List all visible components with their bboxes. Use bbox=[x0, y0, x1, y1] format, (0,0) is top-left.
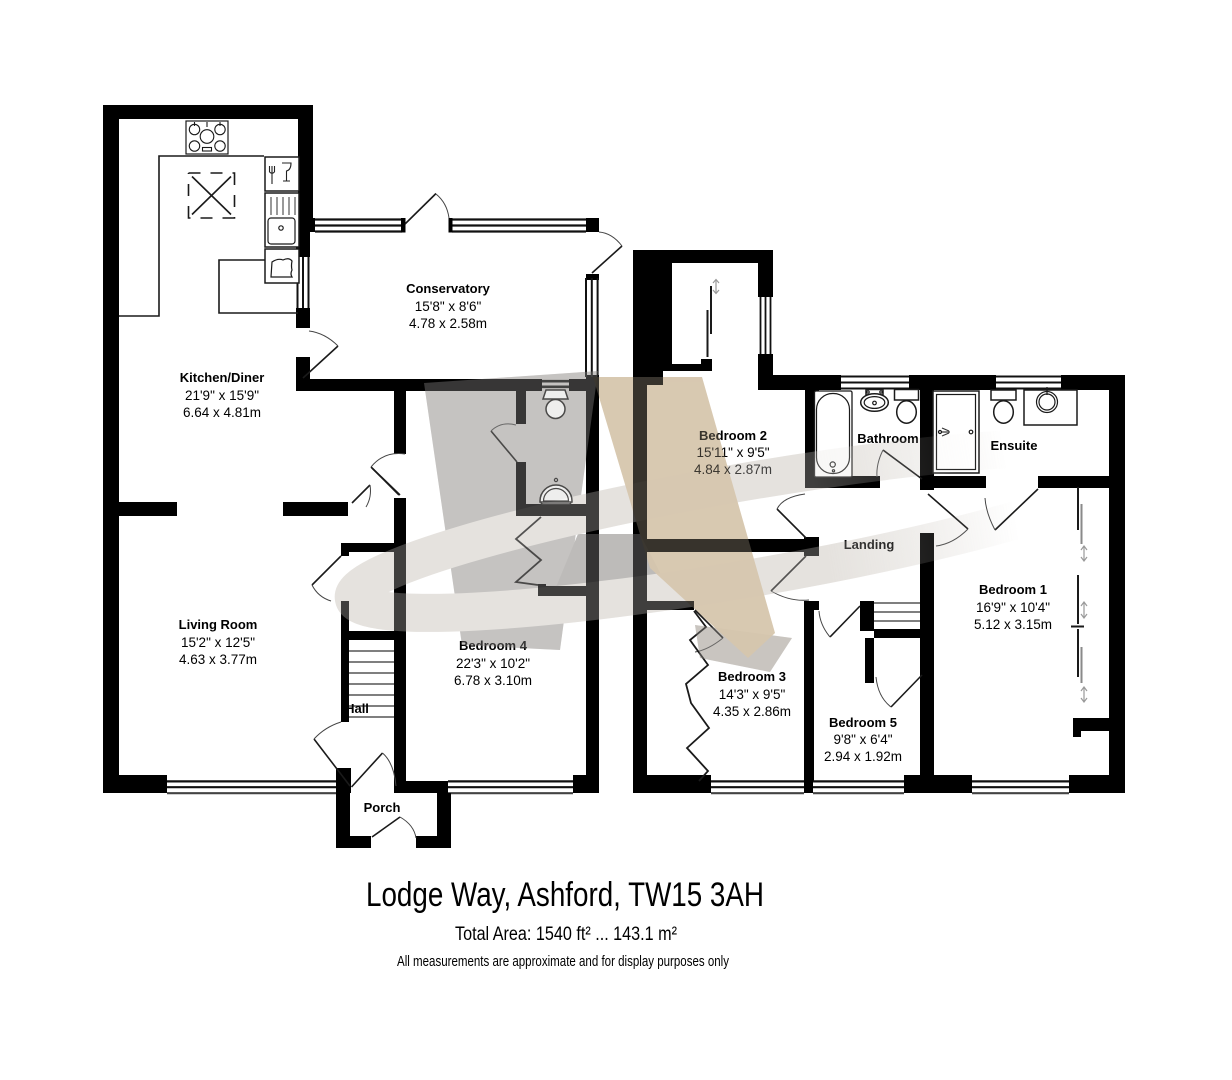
svg-text:4.35 x 2.86m: 4.35 x 2.86m bbox=[713, 704, 791, 719]
svg-text:Living Room: Living Room bbox=[179, 617, 258, 632]
svg-text:Conservatory: Conservatory bbox=[406, 281, 491, 296]
svg-text:22'3" x 10'2": 22'3" x 10'2" bbox=[456, 656, 530, 671]
svg-text:Bedroom 5: Bedroom 5 bbox=[829, 715, 897, 730]
svg-text:9'8" x 6'4": 9'8" x 6'4" bbox=[833, 732, 892, 747]
svg-text:15'2" x 12'5": 15'2" x 12'5" bbox=[181, 635, 255, 650]
svg-text:Lodge Way, Ashford, TW15 3AH: Lodge Way, Ashford, TW15 3AH bbox=[366, 876, 764, 914]
svg-text:All measurements are approxima: All measurements are approximate and for… bbox=[397, 953, 729, 970]
svg-text:5.12 x 3.15m: 5.12 x 3.15m bbox=[974, 617, 1052, 632]
svg-text:16'9" x 10'4": 16'9" x 10'4" bbox=[976, 600, 1050, 615]
svg-text:4.63 x 3.77m: 4.63 x 3.77m bbox=[179, 652, 257, 667]
svg-text:Bedroom 1: Bedroom 1 bbox=[979, 582, 1047, 597]
svg-text:21'9" x 15'9": 21'9" x 15'9" bbox=[185, 388, 259, 403]
svg-text:2.94 x 1.92m: 2.94 x 1.92m bbox=[824, 749, 902, 764]
svg-text:6.64 x 4.81m: 6.64 x 4.81m bbox=[183, 405, 261, 420]
svg-text:Kitchen/Diner: Kitchen/Diner bbox=[180, 370, 265, 385]
svg-text:4.78 x 2.58m: 4.78 x 2.58m bbox=[409, 316, 487, 331]
svg-text:Hall: Hall bbox=[345, 701, 369, 716]
svg-text:Bedroom 3: Bedroom 3 bbox=[718, 669, 786, 684]
svg-text:Total Area: 1540 ft² ... 143.1: Total Area: 1540 ft² ... 143.1 m² bbox=[455, 924, 677, 945]
svg-text:Porch: Porch bbox=[364, 800, 401, 815]
svg-text:6.78 x 3.10m: 6.78 x 3.10m bbox=[454, 673, 532, 688]
svg-text:15'8" x 8'6": 15'8" x 8'6" bbox=[415, 299, 482, 314]
svg-text:14'3" x 9'5": 14'3" x 9'5" bbox=[719, 687, 786, 702]
